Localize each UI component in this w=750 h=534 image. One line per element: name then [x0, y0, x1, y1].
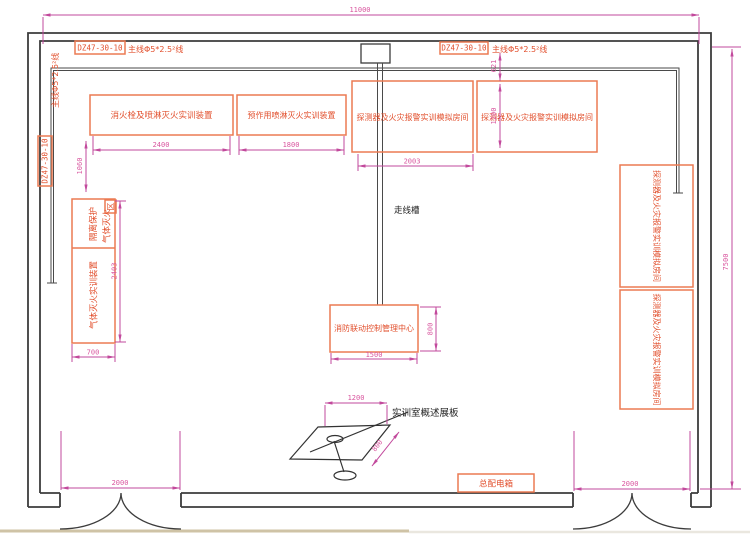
- svg-text:2000: 2000: [112, 479, 129, 487]
- floor-plan-drawing: 走线槽 DZ47-30-10 主线Φ5*2.5²线 DZ47-30-10 主线Φ…: [0, 0, 750, 534]
- detector-room-label: 探测器及火灾报警实训模拟房间: [357, 112, 469, 122]
- overview-board-label: 实训室概述展板: [392, 407, 459, 419]
- breaker-label-left-wall: 主线Φ5*2.5²线 DZ47-30-10: [38, 53, 60, 186]
- power-box-label: 总配电箱: [479, 479, 514, 490]
- gas-extinguishing-zone: 气体灭火 隔离保护 区 气体灭火实训装置: [72, 199, 116, 343]
- gas-zone-text-col1: 气体灭火: [102, 209, 113, 244]
- svg-text:700: 700: [87, 349, 100, 357]
- dim-board-width: 1200: [325, 394, 387, 426]
- gas-zone-text-col2: 隔离保护: [88, 207, 99, 241]
- detector-room-right-2: 探测器及火灾报警实训模拟房间: [620, 290, 693, 409]
- svg-text:1200: 1200: [490, 108, 498, 125]
- hydrant-sprinkler-unit: 消火栓及喷淋灭火实训装置: [90, 95, 233, 135]
- mainline-label: 主线Φ5*2.5²线: [128, 44, 183, 54]
- door-left: [60, 493, 181, 529]
- breaker-label-top-left: DZ47-30-10 主线Φ5*2.5²线: [75, 41, 183, 54]
- svg-text:2000: 2000: [622, 480, 639, 488]
- dim-preaction-width: 1800: [239, 136, 344, 155]
- dim-gas-height: 2403: [111, 201, 127, 342]
- dim-gas-offset: 1060: [76, 141, 86, 192]
- door-right: [573, 493, 691, 529]
- svg-text:1060: 1060: [76, 158, 84, 175]
- detector-room-right-1: 探测器及火灾报警实训模拟房间: [620, 165, 693, 287]
- mainline-label: 主线Φ5*2.5²线: [492, 44, 547, 54]
- dim-wire-offset: 621: [490, 53, 500, 81]
- svg-text:11000: 11000: [349, 6, 370, 14]
- svg-text:621: 621: [490, 60, 498, 73]
- cable-tray-line: [378, 63, 383, 305]
- svg-text:800: 800: [427, 323, 435, 336]
- svg-text:1200: 1200: [348, 394, 365, 402]
- gas-zone-text-col3: 区: [107, 203, 116, 211]
- dim-gas-width: 700: [72, 344, 115, 362]
- control-center-label: 消防联动控制管理中心: [334, 323, 414, 333]
- control-center-unit: 消防联动控制管理中心: [330, 305, 418, 352]
- dim-overall-height: 7500: [700, 47, 741, 489]
- dim-overall-width: 11000: [43, 6, 699, 44]
- cad-canvas: 走线槽 DZ47-30-10 主线Φ5*2.5²线 DZ47-30-10 主线Φ…: [0, 0, 750, 534]
- breaker-code: DZ47-30-10: [41, 138, 50, 184]
- dim-door-left: 2000: [61, 431, 180, 490]
- dim-detector-width: 2003: [358, 154, 473, 171]
- gas-device-label: 气体灭火实训装置: [89, 261, 100, 330]
- detector-room-top-1: 探测器及火灾报警实训模拟房间: [352, 81, 473, 152]
- cable-tray-label: 走线槽: [394, 205, 420, 216]
- mainline-label: 主线Φ5*2.5²线: [50, 53, 60, 108]
- detector-room-label: 探测器及火灾报警实训模拟房间: [652, 294, 662, 406]
- dim-control-height: 800: [420, 307, 441, 351]
- top-wall-junction-box: [361, 44, 390, 63]
- dim-board-depth: 800: [370, 432, 399, 466]
- svg-text:1800: 1800: [283, 141, 300, 149]
- detector-room-label: 探测器及火灾报警实训模拟房间: [652, 170, 662, 282]
- wall-outer: [28, 33, 711, 507]
- svg-text:1500: 1500: [366, 351, 383, 359]
- preaction-sprinkler-unit: 预作用喷淋灭火实训装置: [237, 95, 346, 135]
- power-distribution-box: 总配电箱: [458, 474, 534, 492]
- dim-control-width: 1500: [331, 351, 417, 364]
- svg-text:2400: 2400: [153, 141, 170, 149]
- svg-text:2003: 2003: [404, 158, 421, 166]
- dim-door-right: 2000: [574, 431, 690, 491]
- breaker-label-top-right: DZ47-30-10 主线Φ5*2.5²线: [440, 42, 547, 54]
- ground-line: [0, 531, 750, 532]
- svg-text:2403: 2403: [111, 263, 119, 280]
- breaker-code: DZ47-30-10: [77, 44, 123, 53]
- hydrant-sprinkler-label: 消火栓及喷淋灭火实训装置: [110, 110, 213, 121]
- main-wire-line: [47, 68, 683, 283]
- breaker-code: DZ47-30-10: [441, 44, 487, 53]
- svg-text:800: 800: [370, 438, 384, 453]
- svg-text:7500: 7500: [722, 254, 730, 271]
- dim-hydrant-width: 2400: [93, 136, 230, 155]
- preaction-label: 预作用喷淋灭火实训装置: [248, 110, 336, 120]
